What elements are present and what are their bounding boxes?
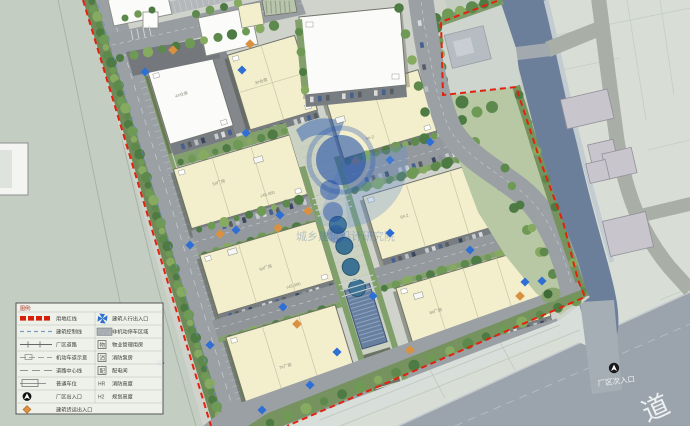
svg-text:用地红线: 用地红线 (56, 314, 77, 322)
svg-text:机动车道示意: 机动车道示意 (56, 353, 87, 361)
svg-text:普通车位: 普通车位 (56, 379, 77, 387)
svg-text:建筑货运出入口: 建筑货运出入口 (56, 405, 92, 413)
svg-text:厂区出入口: 厂区出入口 (56, 392, 82, 400)
svg-text:配: 配 (100, 368, 106, 375)
svg-text:配电间: 配电间 (112, 366, 128, 374)
svg-text:HR: HR (98, 382, 106, 388)
svg-text:物: 物 (100, 341, 106, 349)
svg-text:消防高度: 消防高度 (112, 379, 133, 387)
svg-text:图例:: 图例: (20, 305, 31, 312)
svg-text:物业管理用房: 物业管理用房 (112, 340, 143, 348)
svg-text:厂区道路: 厂区道路 (56, 340, 78, 348)
svg-text:城乡建筑设计研究院: 城乡建筑设计研究院 (296, 229, 395, 243)
svg-text:建筑控制线: 建筑控制线 (56, 327, 82, 335)
svg-text:消防泵房: 消防泵房 (112, 353, 133, 361)
svg-text:建筑人行出入口: 建筑人行出入口 (112, 314, 148, 322)
svg-text:H2: H2 (98, 395, 105, 401)
svg-text:消: 消 (100, 354, 106, 362)
svg-text:非机动停车区域: 非机动停车区域 (112, 327, 148, 335)
svg-text:规划高度: 规划高度 (112, 392, 133, 400)
svg-text:道路中心线: 道路中心线 (56, 366, 82, 374)
